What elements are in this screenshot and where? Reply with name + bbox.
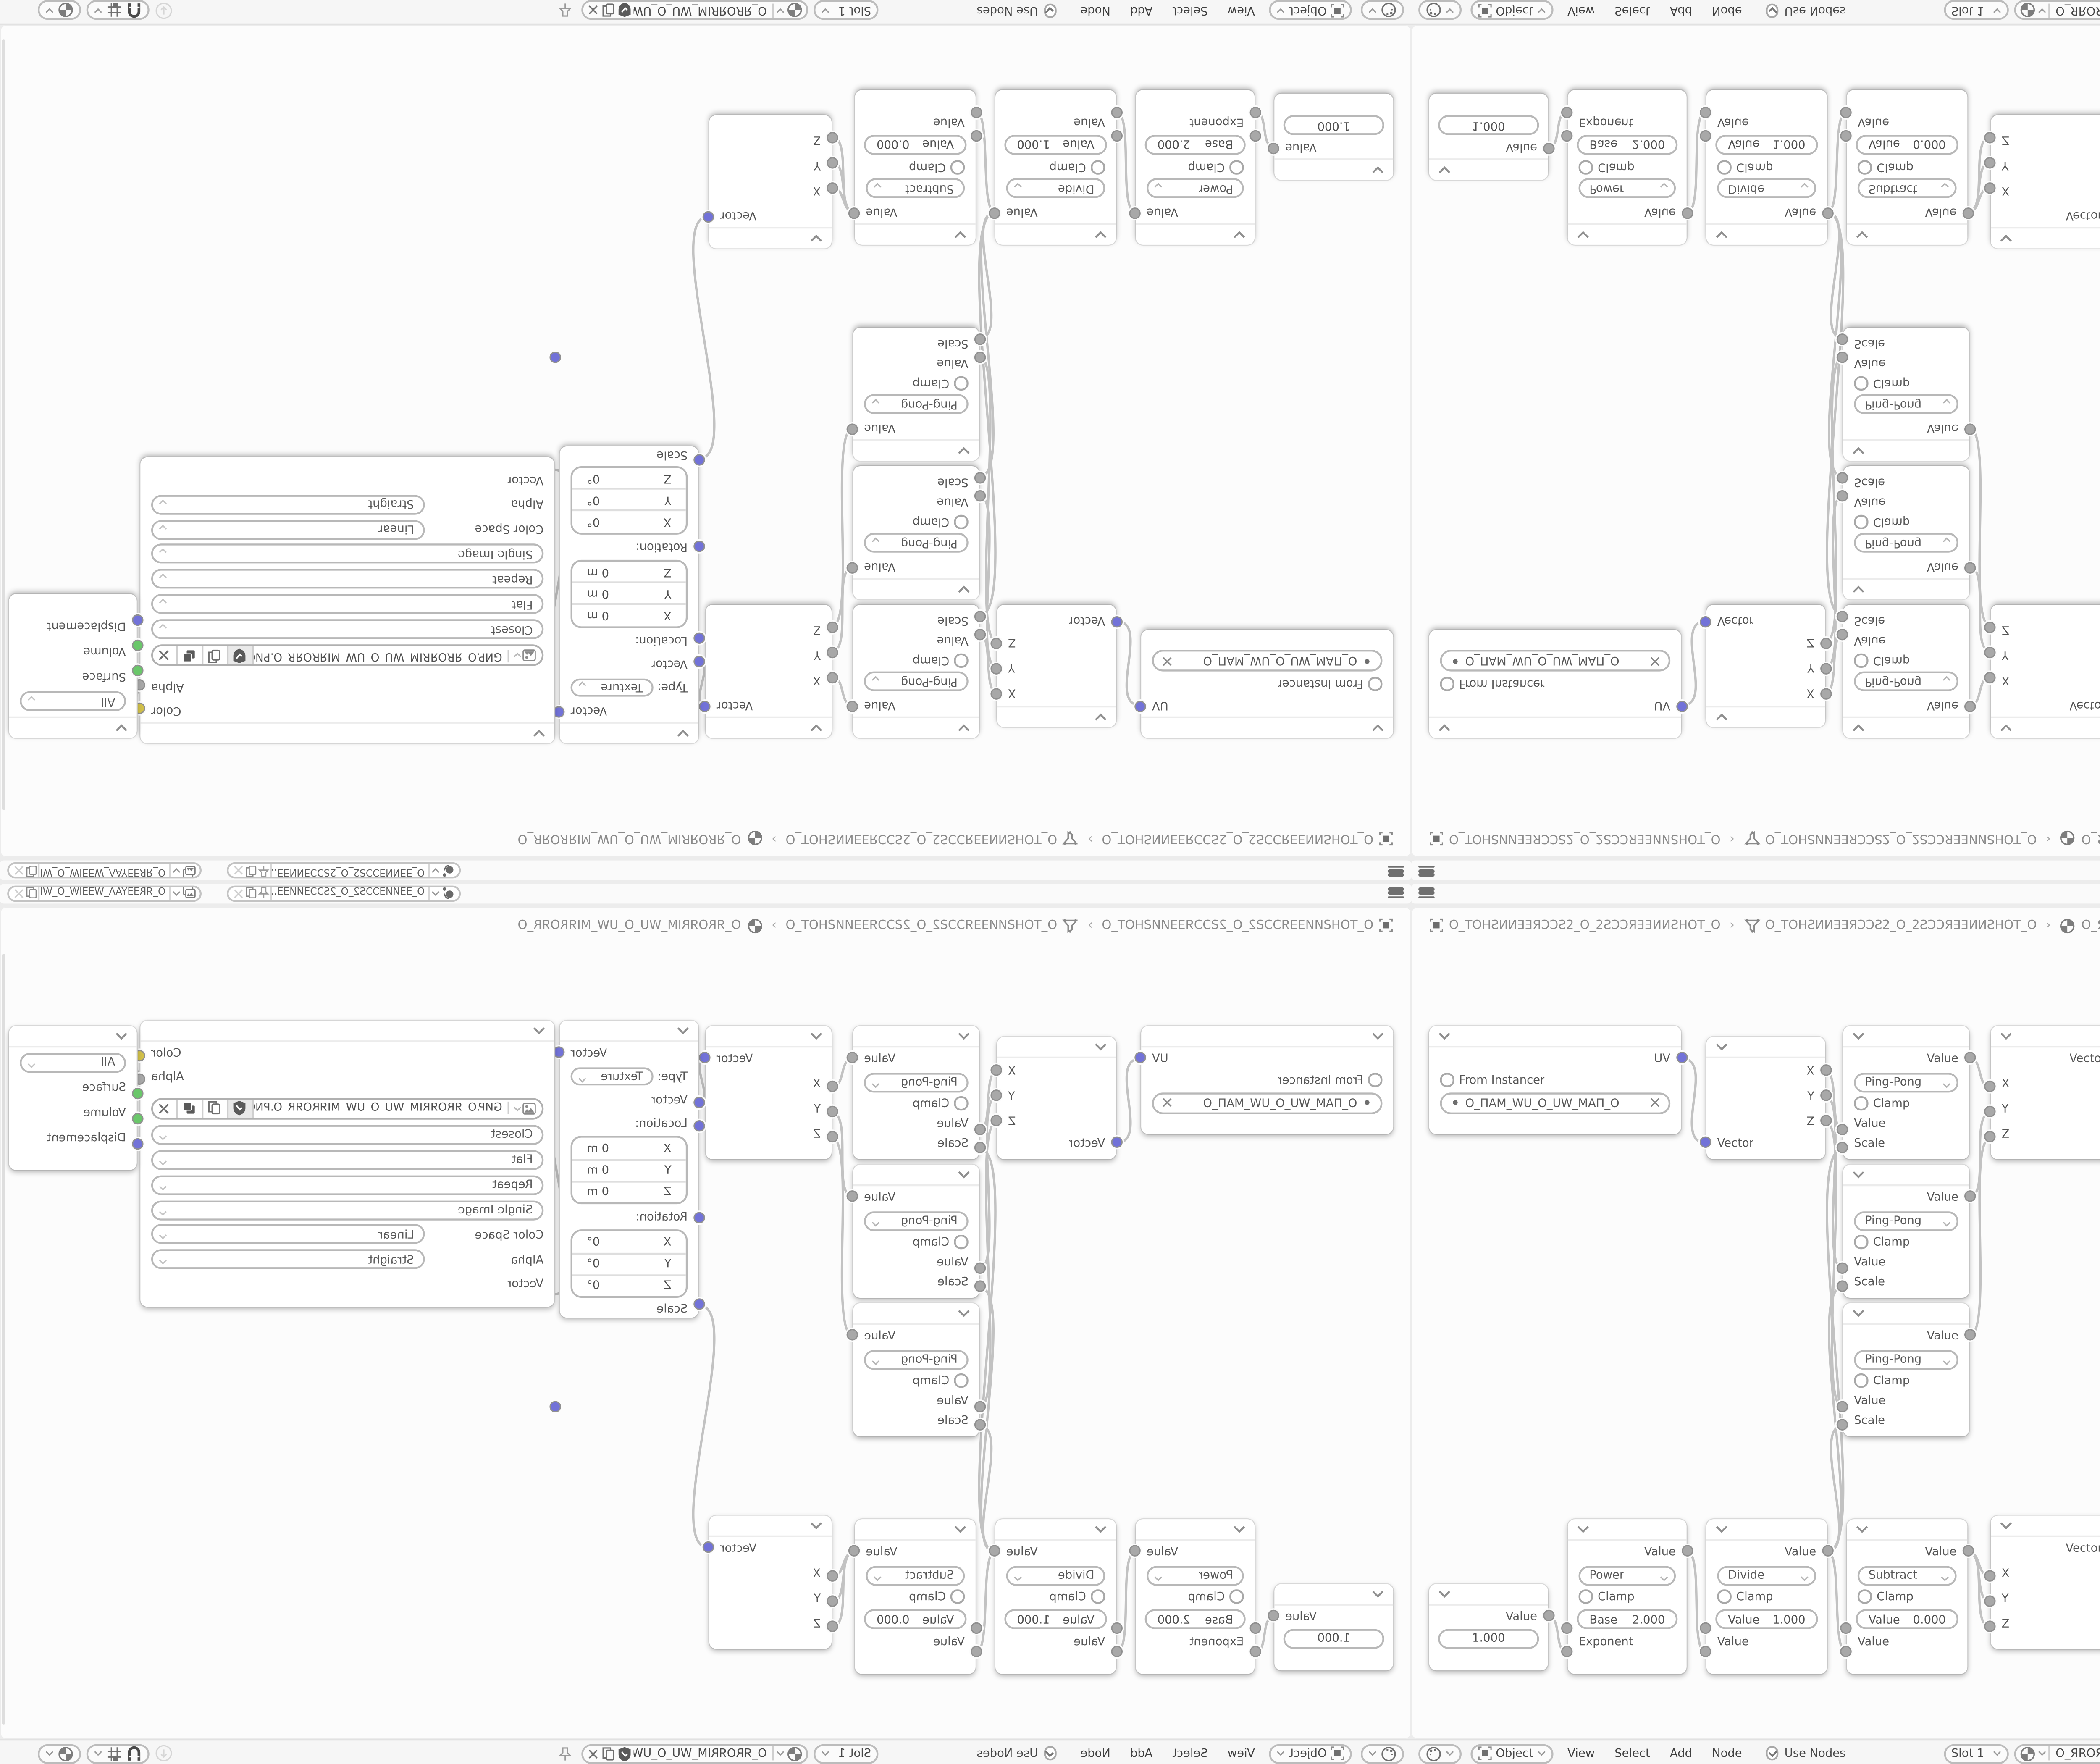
operation-select[interactable]: Ping-Pong [864, 395, 969, 415]
from-instancer-checkbox[interactable] [1369, 1073, 1383, 1087]
collapse-chevron-icon[interactable] [1715, 231, 1728, 239]
collapse-chevron-icon[interactable] [1715, 713, 1728, 722]
mapping-type-select[interactable]: Texture [571, 679, 654, 697]
operation-select[interactable]: Power [1579, 179, 1676, 199]
breadcrumb: O_TOHƧͶИƎƎЯƆƆƧ2_O_2ƧƆƆЯƎƎИͶƧHOT_O › O_TO… [1429, 917, 2100, 934]
operation-select[interactable]: Ping-Pong [1854, 672, 1958, 692]
snapping-controls[interactable] [87, 1, 150, 21]
location-fields[interactable]: X0 m Y0 m Z0 m [571, 1135, 688, 1203]
clamp-checkbox[interactable] [1092, 1590, 1105, 1604]
clamp-checkbox[interactable] [1854, 1097, 1868, 1110]
value-field[interactable]: 1.000 [1284, 116, 1384, 136]
node-value[interactable]: Value 1.000 [1429, 94, 1548, 181]
collapse-chevron-icon[interactable] [1852, 1032, 1865, 1040]
pin-icon[interactable] [257, 886, 270, 900]
location-z-value: 0 m [587, 1184, 609, 1199]
node-math-pingpong[interactable]: Value Ping-Pong Clamp Value Scale [1843, 1025, 1969, 1158]
operation-select[interactable]: Ping-Pong [1854, 1210, 1958, 1230]
clamp-checkbox[interactable] [951, 1590, 965, 1604]
node-combine-xyz[interactable]: Vector X Y Z [1991, 1515, 2100, 1648]
base-field[interactable]: Base2.000 [1145, 135, 1246, 155]
operation-select[interactable]: Divide [1006, 179, 1105, 199]
use-nodes-checkbox[interactable]: Use Nodes [977, 4, 1057, 18]
node-math-pingpong[interactable]: Value Ping-Pong Clamp Value Scale [853, 467, 979, 600]
value-field[interactable]: Value1.000 [1004, 1609, 1107, 1629]
operation-select[interactable]: Subtract [866, 1565, 965, 1585]
value-field[interactable]: 1.000 [1438, 116, 1539, 136]
collapse-chevron-icon[interactable] [1372, 165, 1384, 174]
node-image-texture[interactable]: Color Alpha GИP.O_ЯROЯRIM_WU_O_UW_MIЯROЯ… [140, 458, 554, 744]
uv-map-select[interactable]: O_ПAM_WU_O_UW_MAП_O [1152, 1092, 1383, 1113]
node-math-pingpong[interactable]: Value Ping-Pong Clamp Value Scale [1843, 606, 1969, 739]
input-label: Value [1854, 495, 1885, 509]
uv-map-select[interactable]: O_ПAM_WU_O_UW_MAП_O [1152, 651, 1383, 672]
uv-map-select[interactable]: O_ПAM_WU_O_UW_MAП_O [1440, 651, 1671, 672]
target-select[interactable]: All [20, 692, 126, 712]
node-canvas[interactable]: O_TOHƧͶИƎƎЯƆƆƧ2_O_2ƧƆƆЯƎƎИͶƧHOT_O › O_TO… [1411, 906, 2100, 1739]
node-uv-map[interactable]: UV From Instancer O_ПAM_WU_O_UW_MAП_O [1141, 1025, 1393, 1133]
collapse-chevron-icon[interactable] [1577, 1525, 1589, 1533]
collapse-chevron-icon[interactable] [1438, 1032, 1451, 1040]
clamp-checkbox[interactable] [1858, 160, 1872, 174]
alpha-label: Alpha [432, 1252, 544, 1266]
socket-vector-input[interactable] [550, 1401, 560, 1411]
base-field[interactable]: Base2.000 [1577, 135, 1677, 155]
node-math-power[interactable]: Value Power Clamp Base2.000 Exponent [1136, 1518, 1255, 1673]
pack-image-button[interactable] [178, 1099, 203, 1117]
shading-controls[interactable] [38, 1, 81, 21]
base-field[interactable]: Base2.000 [1145, 1609, 1246, 1629]
operation-select[interactable]: Divide [1717, 179, 1816, 199]
node-math-divide[interactable]: Value Divide Clamp Value1.000 Value [1706, 1518, 1827, 1673]
copy-icon[interactable] [245, 864, 257, 878]
node-material-output[interactable]: All Surface Volume Displacement [9, 595, 136, 739]
fake-user-button[interactable] [228, 1099, 254, 1117]
color-space-select[interactable]: Linear [151, 1224, 425, 1244]
node-canvas[interactable]: O_TOHƧͶИƎƎЯƆƆƧ2_O_2ƧƆƆЯƎƎИͶƧHOT_O › O_TO… [0, 906, 1411, 1739]
alpha-mode-select[interactable]: Straight [151, 1249, 425, 1269]
node-value[interactable]: Value 1.000 [1274, 94, 1393, 181]
collapse-chevron-icon[interactable] [115, 724, 128, 732]
clamp-checkbox[interactable] [955, 654, 969, 668]
from-instancer-checkbox[interactable] [1440, 677, 1454, 691]
clamp-checkbox[interactable] [1717, 160, 1731, 174]
vertical-scrollbar[interactable] [2, 953, 6, 1724]
input-label: X [813, 674, 821, 688]
menu-add[interactable]: Add [1664, 1746, 1698, 1760]
node-math-power[interactable]: Value Power Clamp Base2.000 Exponent [1568, 1518, 1687, 1673]
copy-icon[interactable] [601, 1745, 615, 1761]
node-math-pingpong[interactable]: Value Ping-Pong Clamp Value Scale [853, 606, 979, 739]
shield-icon[interactable] [617, 3, 632, 19]
slot-select[interactable]: Slot 1 [814, 1743, 878, 1763]
slot-select[interactable]: Slot 1 [1944, 1743, 2009, 1763]
collapse-chevron-icon[interactable] [1095, 1042, 1107, 1051]
node-uv-map[interactable]: UV From Instancer O_ПAM_WU_O_UW_MAП_O [1141, 631, 1393, 739]
clamp-checkbox[interactable] [951, 160, 965, 174]
close-icon[interactable] [587, 1747, 599, 1759]
collapse-chevron-icon[interactable] [1095, 1525, 1107, 1533]
operation-select[interactable]: Ping-Pong [864, 1349, 969, 1369]
proportional-editing-icon[interactable] [155, 2, 173, 20]
collapse-chevron-icon[interactable] [533, 1026, 546, 1035]
menu-select[interactable]: Select [1167, 1746, 1213, 1760]
collapse-chevron-icon[interactable] [954, 231, 966, 239]
menu-node[interactable]: Node [1075, 4, 1116, 18]
interpolation-select[interactable]: Closest [151, 1124, 543, 1144]
close-icon[interactable] [587, 5, 599, 17]
clamp-checkbox[interactable] [955, 1374, 969, 1388]
menu-add[interactable]: Add [1664, 4, 1698, 18]
operation-select[interactable]: Subtract [1858, 179, 1957, 199]
node-separate-xyz[interactable]: X Y Z Vector [1706, 606, 1825, 728]
node-math-subtract[interactable]: Value Subtract Clamp Value0.000 Value [1847, 1518, 1967, 1673]
collapse-chevron-icon[interactable] [1438, 724, 1451, 732]
clamp-checkbox[interactable] [1854, 654, 1868, 668]
input-label: Value [1858, 1634, 1889, 1648]
collapse-chevron-icon[interactable] [1852, 585, 1865, 594]
collapse-chevron-icon[interactable] [2000, 234, 2012, 243]
node-canvas[interactable]: O_TOHƧͶИƎƎЯƆƆƧ2_O_2ƧƆƆЯƎƎИͶƧHOT_O › O_TO… [1411, 25, 2100, 858]
input-label: Scale [937, 614, 969, 628]
collapse-chevron-icon[interactable] [810, 724, 823, 732]
output-label: Value [1927, 421, 1958, 436]
collapse-chevron-icon[interactable] [2000, 1032, 2012, 1040]
collapse-chevron-icon[interactable] [2000, 724, 2012, 732]
clamp-checkbox[interactable] [1579, 1590, 1593, 1604]
collapse-chevron-icon[interactable] [1852, 1309, 1865, 1318]
menu-view[interactable]: View [1222, 1746, 1260, 1760]
operation-select[interactable]: Ping-Pong [1854, 1072, 1958, 1092]
scene-selector[interactable]: O_ƎƎͶИƎƆƆS2_O_2SƆƆƎͶИƎƎ… [227, 886, 461, 901]
hamburger-menu-icon[interactable] [1388, 888, 1404, 899]
collapse-chevron-icon[interactable] [1715, 1525, 1728, 1533]
use-nodes-checkbox[interactable]: Use Nodes [1765, 1746, 1845, 1760]
close-icon[interactable] [1649, 1096, 1662, 1109]
hamburger-menu-icon[interactable] [1418, 888, 1435, 899]
node-canvas[interactable]: O_TOHƧͶИƎƎЯƆƆƧ2_O_2ƧƆƆЯƎƎИͶƧHOT_O › O_TO… [0, 25, 1411, 858]
editor-type-button[interactable] [1418, 1743, 1462, 1763]
collapse-chevron-icon[interactable] [1372, 1032, 1384, 1040]
collapse-chevron-icon[interactable] [810, 234, 823, 243]
operation-select[interactable]: Divide [1006, 1565, 1105, 1585]
menu-view[interactable]: View [1562, 4, 1600, 18]
operation-select[interactable]: Power [1579, 1565, 1676, 1585]
node-combine-xyz[interactable]: Vector X Y Z [1991, 606, 2100, 739]
node-material-output[interactable]: All Surface Volume Displacement [9, 1025, 136, 1169]
alpha-mode-select[interactable]: Straight [151, 495, 425, 515]
collapse-chevron-icon[interactable] [954, 1525, 966, 1533]
clamp-checkbox[interactable] [1854, 1235, 1868, 1249]
output-label: X [1806, 687, 1814, 701]
node-uv-map[interactable]: UV From Instancer O_ПAM_WU_O_UW_MAП_O [1429, 631, 1681, 739]
close-icon[interactable] [232, 887, 245, 900]
node-math-subtract[interactable]: Value Subtract Clamp Value0.000 Value [855, 91, 976, 246]
operation-select[interactable]: Power [1147, 1565, 1244, 1585]
source-select[interactable]: Single Image [151, 544, 543, 564]
node-separate-xyz[interactable]: X Y Z Vector [1706, 1036, 1825, 1158]
value-field[interactable]: 1.000 [1284, 1628, 1384, 1648]
view-layer-icon [182, 886, 196, 900]
collapse-chevron-icon[interactable] [1095, 231, 1107, 239]
copy-image-button[interactable] [203, 647, 228, 665]
node-math-pingpong[interactable]: Value Ping-Pong Clamp Value Scale [1843, 1164, 1969, 1297]
clamp-checkbox[interactable] [1579, 160, 1593, 174]
value-field[interactable]: 1.000 [1438, 1628, 1539, 1648]
operation-select[interactable]: Divide [1717, 1565, 1816, 1585]
operation-select[interactable]: Ping-Pong [1854, 395, 1958, 415]
menu-select[interactable]: Select [1609, 1746, 1655, 1760]
from-instancer-checkbox[interactable] [1369, 677, 1383, 691]
vertical-scrollbar[interactable] [2, 39, 6, 811]
value-field[interactable]: Value0.000 [864, 135, 966, 155]
node-math-pingpong[interactable]: Value Ping-Pong Clamp Value Scale [853, 1025, 979, 1158]
node-combine-xyz[interactable]: Vector X Y Z [709, 116, 832, 249]
scene-selector[interactable]: O_ƎƎͶИƎƆƆS2_O_2SƆƆƎͶИƎƎ… [227, 863, 461, 879]
collapse-chevron-icon[interactable] [1372, 724, 1384, 732]
node-math-power[interactable]: Value Power Clamp Base2.000 Exponent [1136, 91, 1255, 246]
pin-icon[interactable] [257, 864, 270, 878]
location-fields[interactable]: X0 m Y0 m Z0 m [571, 561, 688, 629]
location-x-value: 0 m [587, 1140, 609, 1155]
source-select[interactable]: Single Image [151, 1200, 543, 1219]
mapping-type-select[interactable]: Texture [571, 1067, 654, 1085]
value-field[interactable]: Value1.000 [1715, 1609, 1818, 1629]
collapse-chevron-icon[interactable] [1577, 231, 1589, 239]
menu-node[interactable]: Node [1075, 1746, 1116, 1760]
collapse-chevron-icon[interactable] [1095, 713, 1107, 722]
node-math-divide[interactable]: Value Divide Clamp Value1.000 Value [995, 1518, 1116, 1673]
operation-select[interactable]: Ping-Pong [1854, 534, 1958, 554]
fake-user-button[interactable] [228, 647, 254, 665]
material-selector[interactable]: O_ЯROЯRIM_WU_O_UW_MIЯROЯR_O [581, 1, 808, 21]
collapse-chevron-icon[interactable] [1856, 231, 1869, 239]
hamburger-menu-icon[interactable] [1388, 866, 1404, 877]
shield-icon[interactable] [617, 1745, 632, 1761]
node-math-divide[interactable]: Value Divide Clamp Value1.000 Value [995, 91, 1116, 246]
hamburger-menu-icon[interactable] [1418, 866, 1435, 877]
clamp-checkbox[interactable] [1717, 1590, 1731, 1604]
color-space-select[interactable]: Linear [151, 520, 425, 540]
node-math-pingpong[interactable]: Value Ping-Pong Clamp Value Scale [853, 1302, 979, 1436]
node-value[interactable]: Value 1.000 [1429, 1583, 1548, 1669]
collapse-chevron-icon[interactable] [810, 1521, 823, 1530]
operation-select[interactable]: Ping-Pong [864, 534, 969, 554]
operation-select[interactable]: Subtract [1858, 1565, 1957, 1585]
rotation-fields[interactable]: X0° Y0° Z0° [571, 467, 688, 535]
shader-type-select[interactable]: Object [1470, 1743, 1553, 1763]
interpolation-select[interactable]: Closest [151, 620, 543, 640]
collapse-chevron-icon[interactable] [958, 724, 970, 732]
copy-icon[interactable] [601, 3, 615, 19]
node-separate-xyz[interactable]: X Y Z Vector [997, 1036, 1116, 1158]
material-selector[interactable]: O_ЯROЯRIM_WU_O_UW_MIЯROЯR_O [2014, 1743, 2100, 1763]
menu-view[interactable]: View [1562, 1746, 1600, 1760]
material-icon [787, 3, 803, 19]
collapse-chevron-icon[interactable] [1856, 1525, 1869, 1533]
close-icon[interactable] [13, 864, 25, 877]
value-field[interactable]: Value1.000 [1004, 135, 1107, 155]
unlink-image-button[interactable] [153, 1099, 178, 1117]
menu-select[interactable]: Select [1609, 4, 1655, 18]
copy-icon[interactable] [25, 886, 38, 900]
clamp-checkbox[interactable] [955, 377, 969, 391]
operation-select[interactable]: Power [1147, 179, 1244, 199]
collapse-chevron-icon[interactable] [1852, 1170, 1865, 1179]
from-instancer-checkbox[interactable] [1440, 1073, 1454, 1087]
clamp-checkbox[interactable] [1092, 160, 1105, 174]
collapse-chevron-icon[interactable] [1438, 165, 1451, 174]
node-combine-xyz[interactable]: Vector X Y Z [709, 1515, 832, 1648]
pin-icon[interactable] [558, 1745, 572, 1761]
collapse-chevron-icon[interactable] [1852, 446, 1865, 455]
shader-type-select[interactable]: Object [1269, 1, 1352, 21]
close-icon[interactable] [1649, 655, 1662, 668]
collapse-chevron-icon[interactable] [115, 1032, 128, 1040]
copy-icon[interactable] [25, 864, 38, 878]
material-selector[interactable]: O_ЯROЯRIM_WU_O_UW_MIЯROЯR_O [581, 1743, 808, 1763]
collapse-chevron-icon[interactable] [2000, 1521, 2012, 1530]
node-math-subtract[interactable]: Value Subtract Clamp Value0.000 Value [1847, 91, 1967, 246]
operation-select[interactable]: Ping-Pong [864, 1072, 969, 1092]
value-field[interactable]: Value0.000 [864, 1609, 966, 1629]
extension-select[interactable]: Repeat [151, 570, 543, 589]
clamp-checkbox[interactable] [955, 515, 969, 529]
collapse-chevron-icon[interactable] [1233, 1525, 1246, 1533]
operation-select[interactable]: Subtract [866, 179, 965, 199]
image-selector[interactable]: GИP.O_ЯROЯRIM_WU_O_UW_MIЯROЯR_O.PNG [151, 645, 543, 667]
operation-select[interactable]: Ping-Pong [1854, 1349, 1958, 1369]
clamp-checkbox[interactable] [1858, 1590, 1872, 1604]
menu-add[interactable]: Add [1125, 1746, 1158, 1760]
collapse-chevron-icon[interactable] [958, 585, 970, 594]
projection-select[interactable]: Flat [151, 595, 543, 614]
operation-select[interactable]: Ping-Pong [864, 672, 969, 692]
use-nodes-checkbox[interactable]: Use Nodes [977, 1746, 1057, 1760]
material-selector[interactable]: O_ЯROЯRIM_WU_O_UW_MIЯROЯR_O [2014, 1, 2100, 21]
clamp-checkbox[interactable] [1854, 515, 1868, 529]
node-math-pingpong[interactable]: Value Ping-Pong Clamp Value Scale [1843, 328, 1969, 462]
uv-map-select[interactable]: O_ПAM_WU_O_UW_MAП_O [1440, 1092, 1671, 1113]
use-nodes-checkbox[interactable]: Use Nodes [1765, 4, 1845, 18]
collapse-chevron-icon[interactable] [958, 1032, 970, 1040]
close-icon[interactable] [1161, 655, 1173, 668]
node-math-power[interactable]: Value Power Clamp Base2.000 Exponent [1568, 91, 1687, 246]
collapse-chevron-icon[interactable] [958, 1170, 970, 1179]
pack-image-button[interactable] [178, 647, 203, 665]
snapping-controls[interactable] [87, 1743, 150, 1763]
input-label: Y [2002, 1101, 2009, 1115]
value-field[interactable]: Value0.000 [1856, 135, 1958, 155]
copy-image-button[interactable] [203, 1099, 228, 1117]
node-math-pingpong[interactable]: Value Ping-Pong Clamp Value Scale [1843, 1302, 1969, 1436]
collapse-chevron-icon[interactable] [533, 729, 546, 738]
clamp-checkbox[interactable] [955, 1097, 969, 1110]
clamp-checkbox[interactable] [1230, 1590, 1244, 1604]
clamp-checkbox[interactable] [1854, 1374, 1868, 1388]
value-field[interactable]: Value1.000 [1715, 135, 1818, 155]
clamp-checkbox[interactable] [1854, 377, 1868, 391]
proportional-editing-icon[interactable] [155, 1744, 173, 1762]
collapse-chevron-icon[interactable] [1372, 1589, 1384, 1598]
input-label: Scale [656, 448, 688, 462]
image-selector[interactable]: GИP.O_ЯROЯRIM_WU_O_UW_MIЯROЯR_O.PNG [151, 1097, 543, 1118]
close-icon[interactable] [13, 887, 25, 900]
pin-icon[interactable] [558, 3, 572, 19]
node-math-pingpong[interactable]: Value Ping-Pong Clamp Value Scale [853, 328, 979, 462]
clamp-checkbox[interactable] [1230, 160, 1244, 174]
node-combine-xyz[interactable]: Vector X Y Z [1991, 1025, 2100, 1158]
slot-select[interactable]: Slot 1 [1944, 1, 2009, 21]
operation-select[interactable]: Ping-Pong [864, 1210, 969, 1230]
editor-type-button[interactable] [1361, 1, 1404, 21]
collapse-chevron-icon[interactable] [958, 1309, 970, 1318]
node-math-pingpong[interactable]: Value Ping-Pong Clamp Value Scale [1843, 467, 1969, 600]
editor-type-button[interactable] [1418, 1, 1462, 21]
target-select[interactable]: All [20, 1052, 126, 1072]
node-math-subtract[interactable]: Value Subtract Clamp Value0.000 Value [855, 1518, 976, 1673]
view-layer-selector[interactable]: O_ЯRƎƎYAΛ_WƎƎIW_O_WIƎƎW_ΛAYƎƎRЯ_O [7, 886, 202, 901]
slot-select[interactable]: Slot 1 [814, 1, 878, 21]
quadrant-bottom-left: O_ƎƎͶИƎƆƆS2_O_2SƆƆƎͶИƎƎ… O_ЯRƎƎYAΛ_WƎƎIW… [0, 882, 1411, 1764]
socket-vector-input[interactable] [550, 353, 560, 362]
node-math-pingpong[interactable]: Value Ping-Pong Clamp Value Scale [853, 1164, 979, 1297]
node-combine-xyz[interactable]: Vector X Y Z [706, 606, 832, 739]
node-value[interactable]: Value 1.000 [1274, 1583, 1393, 1669]
value-field[interactable]: Value0.000 [1856, 1609, 1958, 1629]
unlink-image-button[interactable] [153, 647, 178, 665]
menu-node[interactable]: Node [1706, 1746, 1747, 1760]
shader-type-select[interactable]: Object [1470, 1, 1553, 21]
clamp-checkbox[interactable] [955, 1235, 969, 1249]
projection-select[interactable]: Flat [151, 1149, 543, 1169]
menu-view[interactable]: View [1222, 4, 1260, 18]
collapse-chevron-icon[interactable] [958, 446, 970, 455]
node-mapping[interactable]: Vector Type: Texture Vector Location: X0… [560, 1020, 698, 1317]
node-separate-xyz[interactable]: X Y Z Vector [997, 606, 1116, 728]
rotation-fields[interactable]: X0° Y0° Z0° [571, 1228, 688, 1297]
menu-add[interactable]: Add [1125, 4, 1158, 18]
close-icon[interactable] [1161, 1096, 1173, 1109]
node-uv-map[interactable]: UV From Instancer O_ПAM_WU_O_UW_MAП_O [1429, 1025, 1681, 1133]
collapse-chevron-icon[interactable] [677, 1026, 689, 1035]
menu-select[interactable]: Select [1167, 4, 1213, 18]
collapse-chevron-icon[interactable] [810, 1032, 823, 1040]
shading-controls[interactable] [38, 1743, 81, 1763]
view-layer-selector[interactable]: O_ЯRƎƎYAΛ_WƎƎIW_O_WIƎƎW_ΛAYƎƎRЯ_O [7, 863, 202, 879]
collapse-chevron-icon[interactable] [677, 729, 689, 738]
node-combine-xyz[interactable]: Vector X Y Z [706, 1025, 832, 1158]
node-mapping[interactable]: Vector Type: Texture Vector Location: X0… [560, 447, 698, 744]
extension-select[interactable]: Repeat [151, 1174, 543, 1194]
output-label: Value [1925, 205, 1956, 220]
collapse-chevron-icon[interactable] [1438, 1589, 1451, 1598]
editor-type-button[interactable] [1361, 1743, 1404, 1763]
collapse-chevron-icon[interactable] [1852, 724, 1865, 732]
collapse-chevron-icon[interactable] [1233, 231, 1246, 239]
shader-type-select[interactable]: Object [1269, 1743, 1352, 1763]
node-math-divide[interactable]: Value Divide Clamp Value1.000 Value [1706, 91, 1827, 246]
copy-icon[interactable] [245, 886, 257, 900]
menu-node[interactable]: Node [1706, 4, 1747, 18]
node-image-texture[interactable]: Color Alpha GИP.O_ЯROЯRIM_WU_O_UW_MIЯROЯ… [140, 1020, 554, 1306]
node-combine-xyz[interactable]: Vector X Y Z [1991, 116, 2100, 249]
base-field[interactable]: Base2.000 [1577, 1609, 1677, 1629]
collapse-chevron-icon[interactable] [1715, 1042, 1728, 1051]
close-icon[interactable] [232, 864, 245, 877]
input-label: Z [813, 1126, 821, 1140]
chevron-down-icon [159, 624, 168, 631]
